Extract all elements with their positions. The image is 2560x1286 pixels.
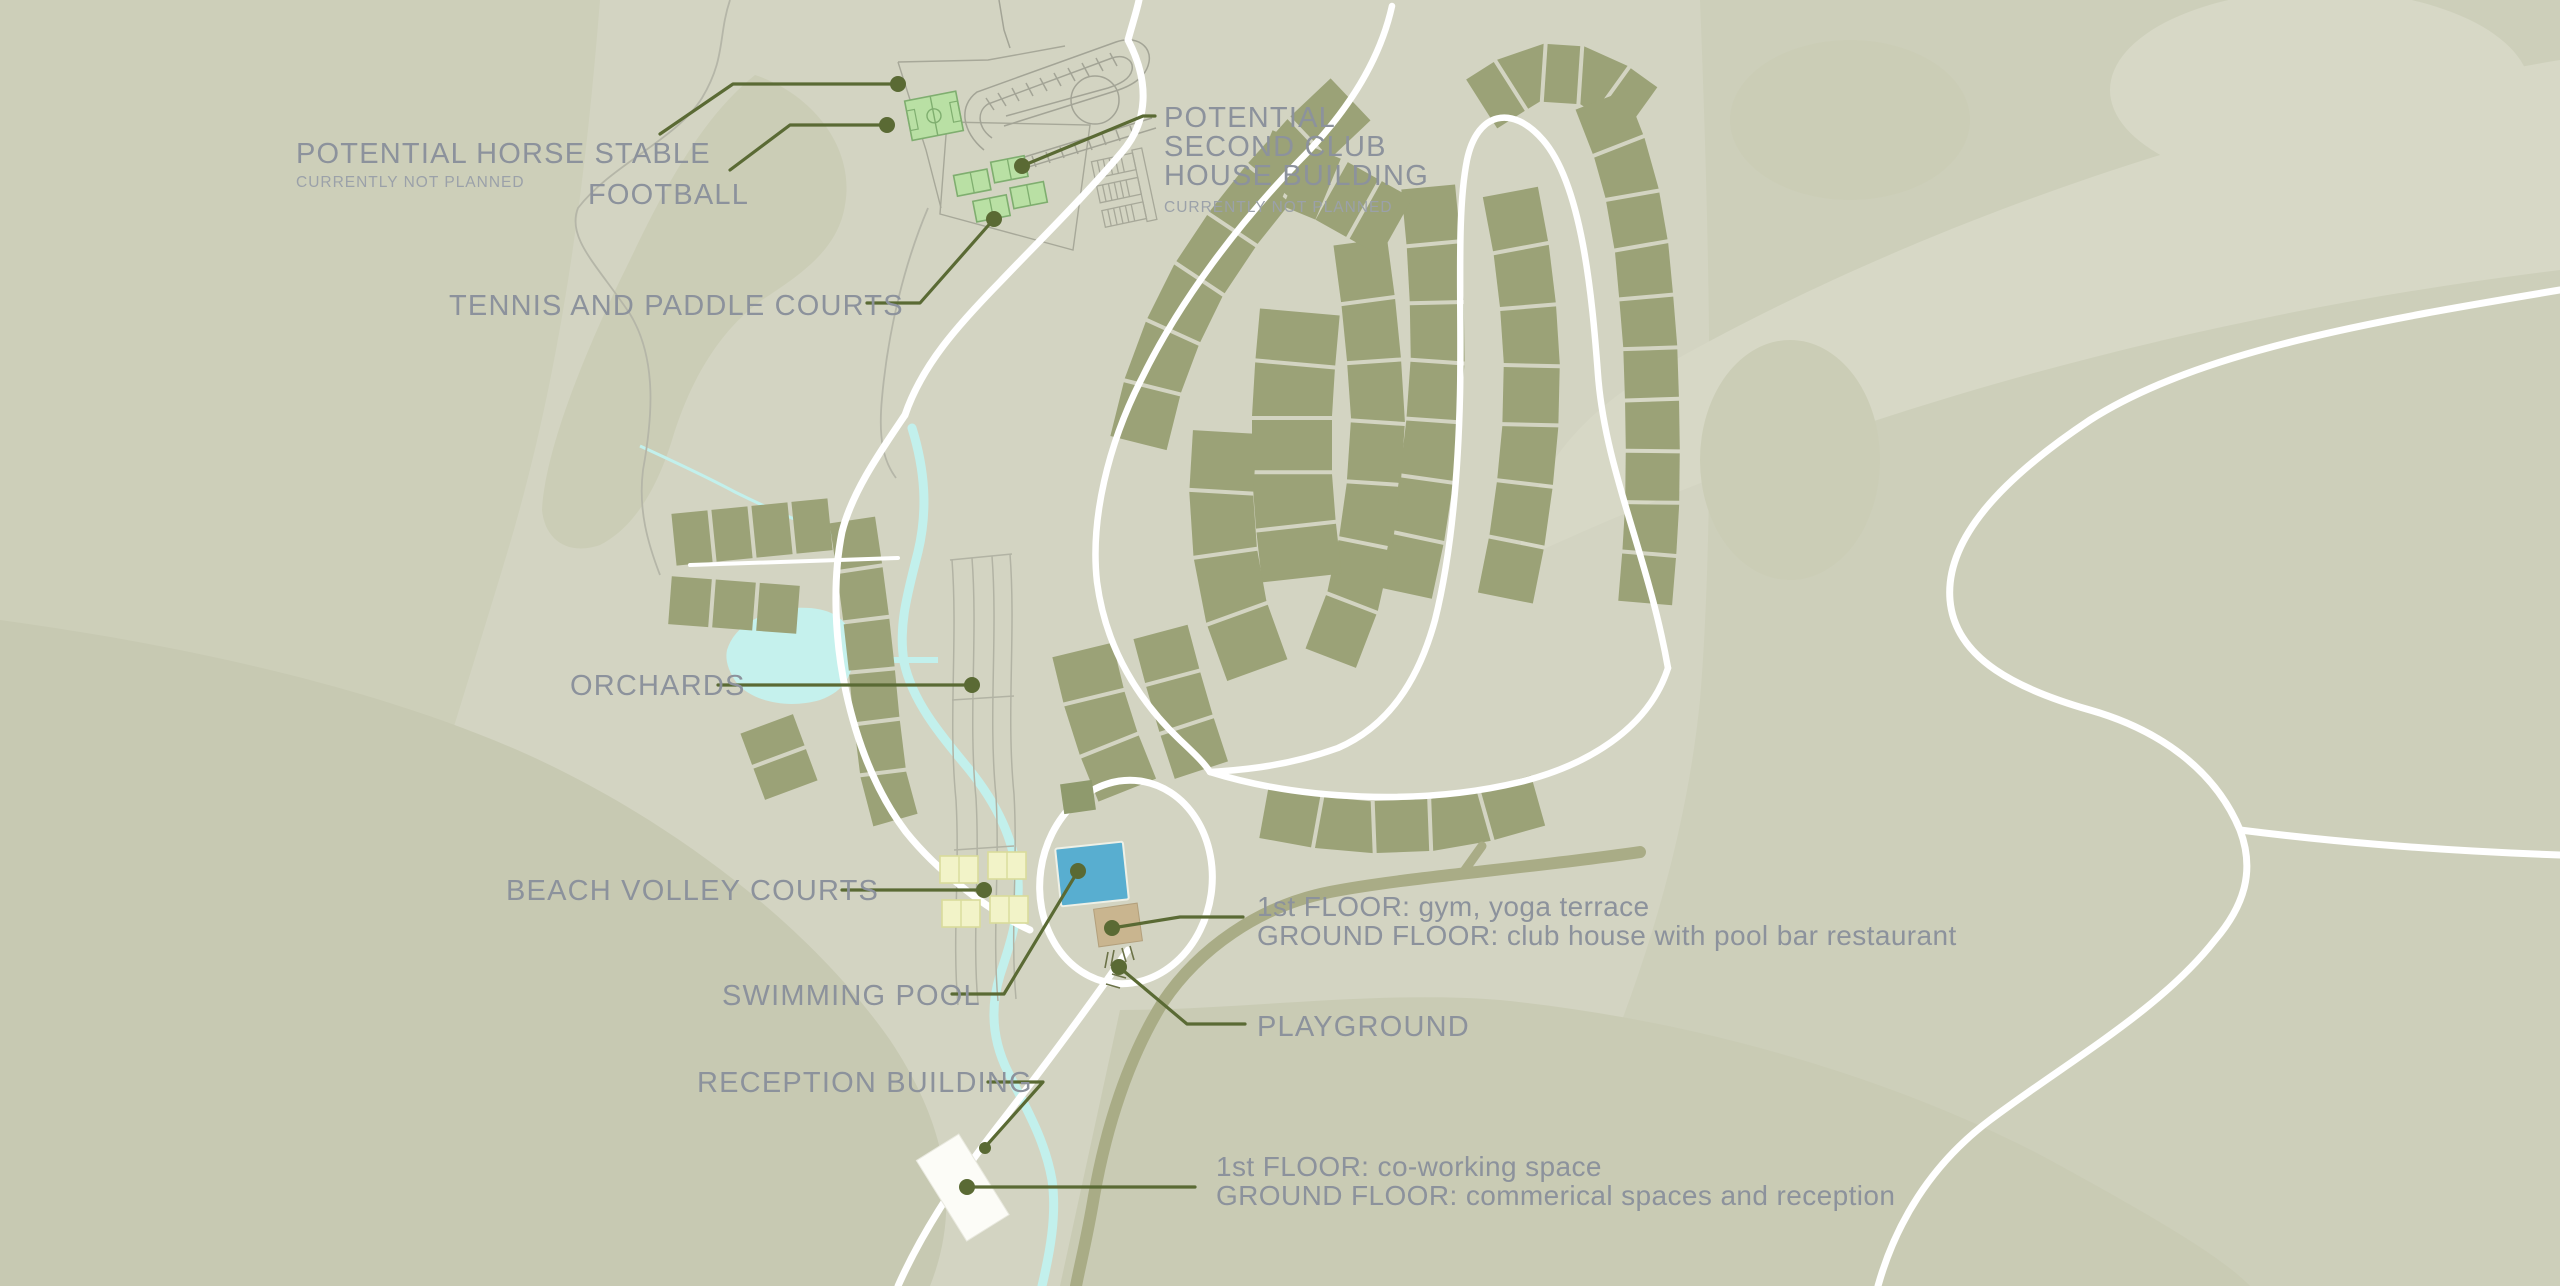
housing-lot — [1256, 524, 1341, 583]
housing-lot — [1483, 187, 1548, 251]
leader-dot-reception — [979, 1142, 991, 1154]
housing-lot — [1256, 308, 1340, 365]
leader-dot-club-house — [1104, 920, 1120, 936]
leader-dot-orchards — [964, 677, 980, 693]
terrain-dark-blob-a — [1730, 40, 1970, 200]
label-second-club-line1: POTENTIAL — [1164, 102, 1336, 134]
leader-dot-football — [879, 117, 895, 133]
housing-lot — [791, 498, 832, 553]
housing-lot — [1625, 401, 1680, 450]
caption-horse-stable: CURRENTLY NOT PLANNED — [296, 174, 525, 191]
housing-lot — [1625, 453, 1680, 501]
housing-lot — [1615, 243, 1673, 297]
housing-lot — [1339, 483, 1400, 546]
housing-lot — [1342, 299, 1401, 361]
caption-second-club: CURRENTLY NOT PLANNED — [1164, 199, 1393, 216]
housing-lot — [751, 502, 792, 557]
housing-lot — [1497, 426, 1558, 485]
leader-dot-second-club — [1014, 158, 1030, 174]
label-swimming-pool: SWIMMING POOL — [722, 980, 981, 1012]
label-tennis: TENNIS AND PADDLE COURTS — [449, 290, 904, 322]
housing-lot — [1544, 44, 1580, 104]
housing-lot — [1407, 362, 1465, 421]
housing-lot — [1347, 422, 1405, 483]
leader-dot-tennis — [986, 211, 1002, 227]
housing-lot — [1478, 539, 1544, 604]
housing-lot — [1375, 799, 1430, 853]
label-reception-info-line1: 1st FLOOR: co-working space — [1216, 1151, 1602, 1182]
label-football: FOOTBALL — [588, 179, 749, 211]
housing-lot — [1347, 361, 1405, 422]
housing-lot — [1391, 477, 1453, 541]
label-club-house-info-line1: 1st FLOOR: gym, yoga terrace — [1257, 891, 1649, 922]
housing-lot — [1623, 349, 1679, 398]
housing-lot — [1401, 184, 1460, 244]
housing-lot — [837, 567, 889, 620]
map-canvas: POTENTIAL HORSE STABLE CURRENTLY NOT PLA… — [0, 0, 2560, 1286]
housing-lot — [711, 506, 752, 561]
swimming-pool — [1055, 842, 1129, 907]
housing-lot — [1190, 430, 1257, 492]
label-second-club-line3: HOUSE BUILDING — [1164, 160, 1429, 192]
label-reception-info-line2: GROUND FLOOR: commerical spaces and rece… — [1216, 1180, 1895, 1211]
leader-dot-beach-volley — [976, 882, 992, 898]
site-plan-map: POTENTIAL HORSE STABLE CURRENTLY NOT PLA… — [0, 0, 2560, 1286]
housing-lot — [844, 619, 895, 671]
housing-lot — [1252, 420, 1332, 470]
housing-lot — [1500, 306, 1560, 364]
housing-lot — [712, 580, 756, 631]
label-playground: PLAYGROUND — [1257, 1011, 1470, 1043]
housing-lot — [1619, 297, 1677, 348]
housing-lot — [1407, 243, 1464, 301]
housing-lot — [668, 576, 712, 627]
housing-lot — [1606, 193, 1667, 249]
housing-lot — [1490, 482, 1553, 545]
housing-lot — [1410, 304, 1465, 362]
label-orchards: ORCHARDS — [570, 670, 746, 702]
gym-building — [1060, 780, 1096, 814]
label-second-club-line2: SECOND CLUB — [1164, 131, 1387, 163]
housing-lot — [756, 583, 800, 634]
terrain-dark-blob-b — [1700, 340, 1880, 580]
housing-lot — [1252, 362, 1335, 416]
leader-dot-playground — [1111, 959, 1127, 975]
housing-lot — [1334, 238, 1395, 302]
label-horse-stable: POTENTIAL HORSE STABLE — [296, 138, 711, 170]
housing-lot — [1400, 421, 1460, 481]
housing-lot — [1189, 492, 1257, 556]
housing-lot — [1502, 367, 1559, 423]
label-club-house-info-line2: GROUND FLOOR: club house with pool bar r… — [1257, 920, 1957, 951]
leader-dot-horse-stable — [890, 76, 906, 92]
label-reception: RECEPTION BUILDING — [697, 1067, 1033, 1099]
housing-lot — [849, 670, 899, 722]
leader-dot-reception-info — [959, 1179, 975, 1195]
leader-dot-swimming-pool — [1070, 863, 1086, 879]
housing-lot — [671, 510, 712, 565]
housing-lot — [1315, 797, 1373, 853]
housing-lot — [1252, 474, 1336, 528]
label-beach-volley: BEACH VOLLEY COURTS — [506, 875, 879, 907]
housing-lot — [1494, 245, 1556, 307]
